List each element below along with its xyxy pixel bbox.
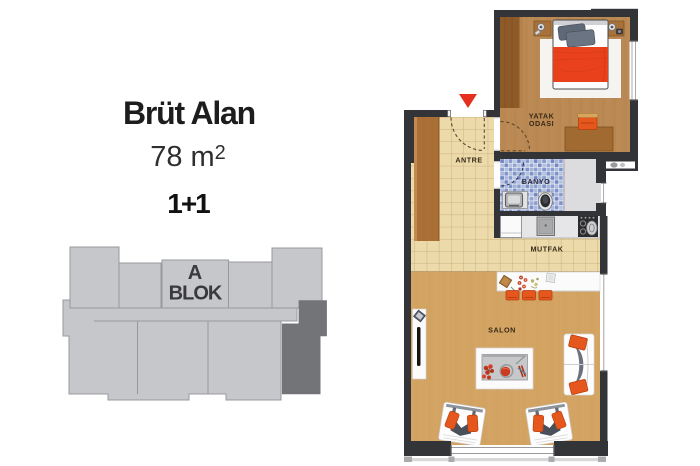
svg-text:ANTRE: ANTRE [455, 156, 482, 165]
svg-text:Brüt Alan: Brüt Alan [123, 95, 255, 131]
svg-text:MUTFAK: MUTFAK [531, 245, 564, 254]
svg-text:A: A [188, 262, 202, 284]
svg-text:BANYO: BANYO [522, 177, 550, 186]
svg-text:SALON: SALON [488, 326, 516, 335]
svg-text:BLOK: BLOK [169, 283, 223, 305]
svg-text:78 m2: 78 m2 [150, 141, 226, 173]
svg-text:ODASI: ODASI [529, 119, 554, 128]
svg-text:1+1: 1+1 [167, 188, 210, 219]
